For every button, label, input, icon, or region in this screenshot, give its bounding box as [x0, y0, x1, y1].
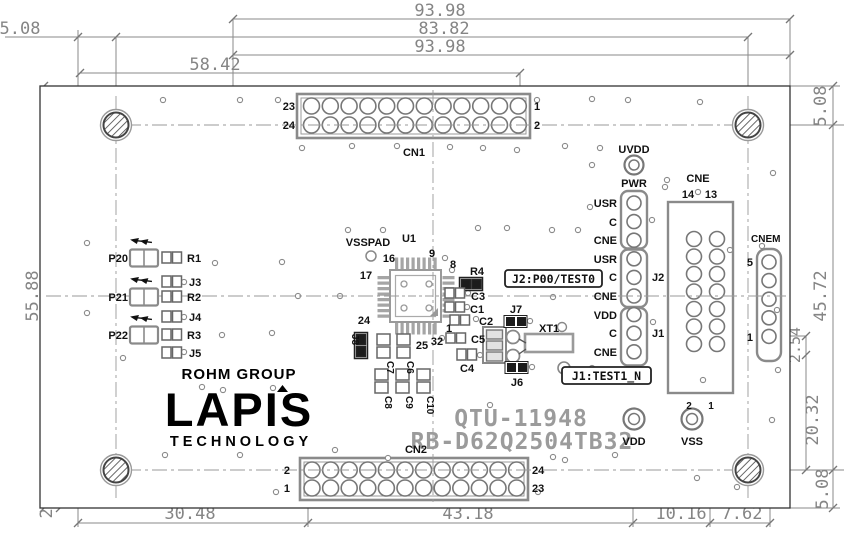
dim-hole-offset-left: 5.08 [0, 19, 40, 39]
j2-ref-label: J2 [652, 272, 664, 284]
cne-ref-label: CNE [686, 173, 709, 185]
mounting-hole-top-right [733, 110, 764, 141]
r2-label: R2 [187, 292, 201, 304]
r3-label: R3 [187, 330, 201, 342]
j7-label: J7 [510, 304, 522, 316]
cn2-pin2-label: 2 [284, 465, 290, 477]
c10-label: C10 [424, 396, 435, 415]
vsspad-pad [366, 251, 376, 261]
jumper-j7 [504, 316, 527, 328]
vdd-label: VDD [622, 436, 645, 448]
r4-label: R4 [470, 266, 485, 278]
p20-label: P20 [108, 253, 128, 265]
xt1-label: XT1 [539, 323, 559, 335]
p22-label: P22 [108, 330, 128, 342]
u1-pin17-label: 17 [360, 270, 372, 282]
vdd-pad [624, 409, 645, 430]
cnem-pin5-label: 5 [747, 257, 753, 269]
drawing-canvas: 93.98 83.82 5.08 93.98 58.42 55.88 50.8 … [0, 0, 850, 548]
cn1-pin23-label: 23 [283, 101, 295, 113]
part-c4 [457, 349, 477, 360]
jheader-row-cne3: CNE [594, 347, 617, 359]
j2-note-text: J2:P00/TEST0 [512, 272, 595, 286]
xt1-crystal [525, 334, 573, 352]
c3-label: C3 [471, 291, 485, 303]
j3-label: J3 [189, 277, 201, 289]
c1-label: C1 [470, 304, 484, 316]
c9-label: C9 [403, 396, 414, 409]
c4-label: C4 [460, 363, 475, 375]
j6-label: J6 [511, 377, 523, 389]
uvdd-label: UVDD [618, 144, 649, 156]
j8-label: J8 [349, 334, 360, 346]
u1-pin24-label: 24 [358, 315, 371, 327]
cne-pin14-label: 14 [682, 189, 695, 201]
cn1-pin1-label: 1 [534, 101, 540, 113]
vss-pad [682, 409, 703, 430]
u1-pin1-label: 1 [446, 323, 452, 335]
cn1-pin24-label: 24 [283, 120, 296, 132]
j1-note-box: J1:TEST1_N [562, 367, 651, 384]
mounting-hole-bottom-right [733, 455, 764, 486]
u1-pin25-label: 25 [416, 340, 428, 352]
logo-rohm-group: ROHM GROUP [182, 366, 297, 383]
xt1-pad-bottom [507, 350, 520, 363]
c6-label: C6 [404, 361, 415, 374]
mounting-hole-bottom-left [101, 455, 132, 486]
dim-top-outer: 93.98 [414, 1, 465, 21]
j1-ref-label: J1 [652, 328, 664, 340]
dim-top-inner: 93.98 [414, 37, 465, 57]
dim-top-holes: 83.82 [418, 19, 469, 39]
jumper-j6 [505, 362, 528, 374]
j2-note-box: J2:P00/TEST0 [505, 270, 602, 287]
mounting-hole-top-left [101, 110, 132, 141]
part-j5 [162, 347, 182, 358]
board-code-line2: RB-D62Q2504TB32 [411, 429, 634, 455]
dim-cn1-offset: 58.42 [189, 55, 240, 75]
part-j4 [162, 311, 182, 322]
jheader-row-usr2: USR [594, 254, 617, 266]
jheader-row-cne1: CNE [594, 235, 617, 247]
cne-body [668, 202, 733, 393]
c2-label: C2 [479, 316, 493, 328]
jheader-row-vdd: VDD [594, 310, 617, 322]
dim-right-mid: 20.32 [803, 394, 823, 445]
part-r3 [162, 329, 182, 340]
cn2-pin23-label: 23 [532, 483, 544, 495]
vsspad-label: VSSPAD [346, 237, 390, 249]
part-c3 [445, 288, 465, 298]
jheader-row-c3: C [609, 328, 617, 340]
jheader-row-c1: C [609, 217, 617, 229]
p21-label: P21 [108, 292, 128, 304]
cne-pin13-label: 13 [705, 189, 717, 201]
j5-label: J5 [189, 348, 201, 360]
dim-right-span: 45.72 [811, 270, 831, 321]
pcb-assembly-drawing: 93.98 83.82 5.08 93.98 58.42 55.88 50.8 … [0, 0, 850, 548]
vss-label: VSS [681, 436, 703, 448]
uvdd-pad [625, 156, 644, 175]
part-c2 [450, 315, 470, 325]
jheader-row-cne2: CNE [594, 291, 617, 303]
u1-pin9-label: 9 [429, 248, 435, 260]
cne-pin2-label: 2 [686, 401, 692, 412]
cnem-pin1-label: 1 [747, 332, 753, 344]
cn1-ref-label: CN1 [403, 147, 425, 159]
u1-pin16-label: 16 [383, 253, 395, 265]
dim-right-bot: 5.08 [813, 469, 833, 510]
u1-pin32-label: 32 [431, 336, 443, 348]
c8-label: C8 [382, 396, 393, 409]
cnem-ref-label: CNEM [751, 234, 780, 245]
c7-label: C7 [384, 361, 395, 374]
dim-right-top: 5.08 [811, 86, 831, 127]
logo-lapis: LAPIS [165, 383, 313, 436]
part-j3 [162, 276, 182, 287]
logo-technology: TECHNOLOGY [170, 434, 312, 450]
part-r2 [162, 291, 182, 302]
j4-label: J4 [189, 312, 202, 324]
part-r1 [162, 252, 182, 263]
u1-pin8-label: 8 [450, 259, 456, 271]
j1-note-text: J1:TEST1_N [572, 369, 641, 384]
c5-label: C5 [471, 334, 485, 346]
part-c1 [445, 302, 465, 312]
r1-label: R1 [187, 253, 201, 265]
cne-pin1-label: 1 [708, 401, 714, 412]
jheader-row-usr1: USR [594, 198, 617, 210]
xt1-pad-top [507, 331, 520, 344]
u1-ref-label: U1 [402, 233, 416, 245]
cn1-pin2-label: 2 [534, 120, 540, 132]
cn2-pin1-label: 1 [284, 483, 290, 495]
cn2-pin24-label: 24 [532, 465, 545, 477]
pwr-label: PWR [621, 178, 647, 190]
led-rows [130, 236, 182, 358]
jheader-row-c2: C [609, 272, 617, 284]
cn2-ref-label: CN2 [405, 444, 427, 456]
